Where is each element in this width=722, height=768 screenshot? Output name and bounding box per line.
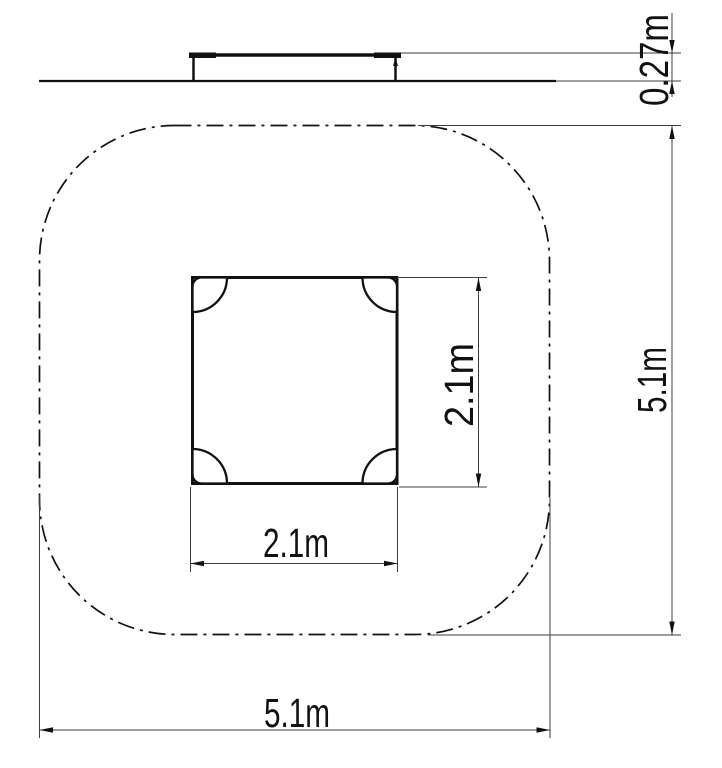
equipment-width-arrow-right [384,561,398,566]
corner-post-top-right [363,278,398,313]
equipment-frame [193,278,398,484]
safety-zone-width-arrow-right [537,727,551,732]
corner-post-bottom-left [193,449,228,484]
safety-zone-width-label: 5.1m [264,690,330,736]
equipment-depth-label: 2.1m [436,343,482,427]
platform-slab-right-cap [374,53,401,59]
equipment-width-dimension: 2.1m [191,487,398,572]
equipment-width-label: 2.1m [263,520,329,566]
dimension-drawing: 0.27m 2.1m 5.1m [0,0,722,768]
height-dimension-label: 0.27m [631,14,677,106]
equipment-depth-dimension: 2.1m [399,278,487,488]
equipment-depth-arrow-top [476,278,481,292]
corner-post-bottom-right [363,449,398,484]
height-dimension: 0.27m [631,13,677,106]
safety-zone-depth-arrow-top [669,126,674,140]
safety-zone-width-arrow-left [40,727,54,732]
side-elevation-view: 0.27m [39,13,681,106]
corner-post-top-left [193,278,228,313]
safety-zone-depth-arrow-bottom [669,622,674,636]
plan-view: 2.1m 5.1m 2.1m 5.1m [40,126,682,739]
equipment-depth-arrow-bottom [476,474,481,488]
safety-zone-depth-label: 5.1m [629,347,675,413]
technical-drawing-canvas: 0.27m 2.1m 5.1m [0,0,722,768]
platform-edge-arrow [393,57,398,66]
equipment-width-arrow-left [191,561,205,566]
